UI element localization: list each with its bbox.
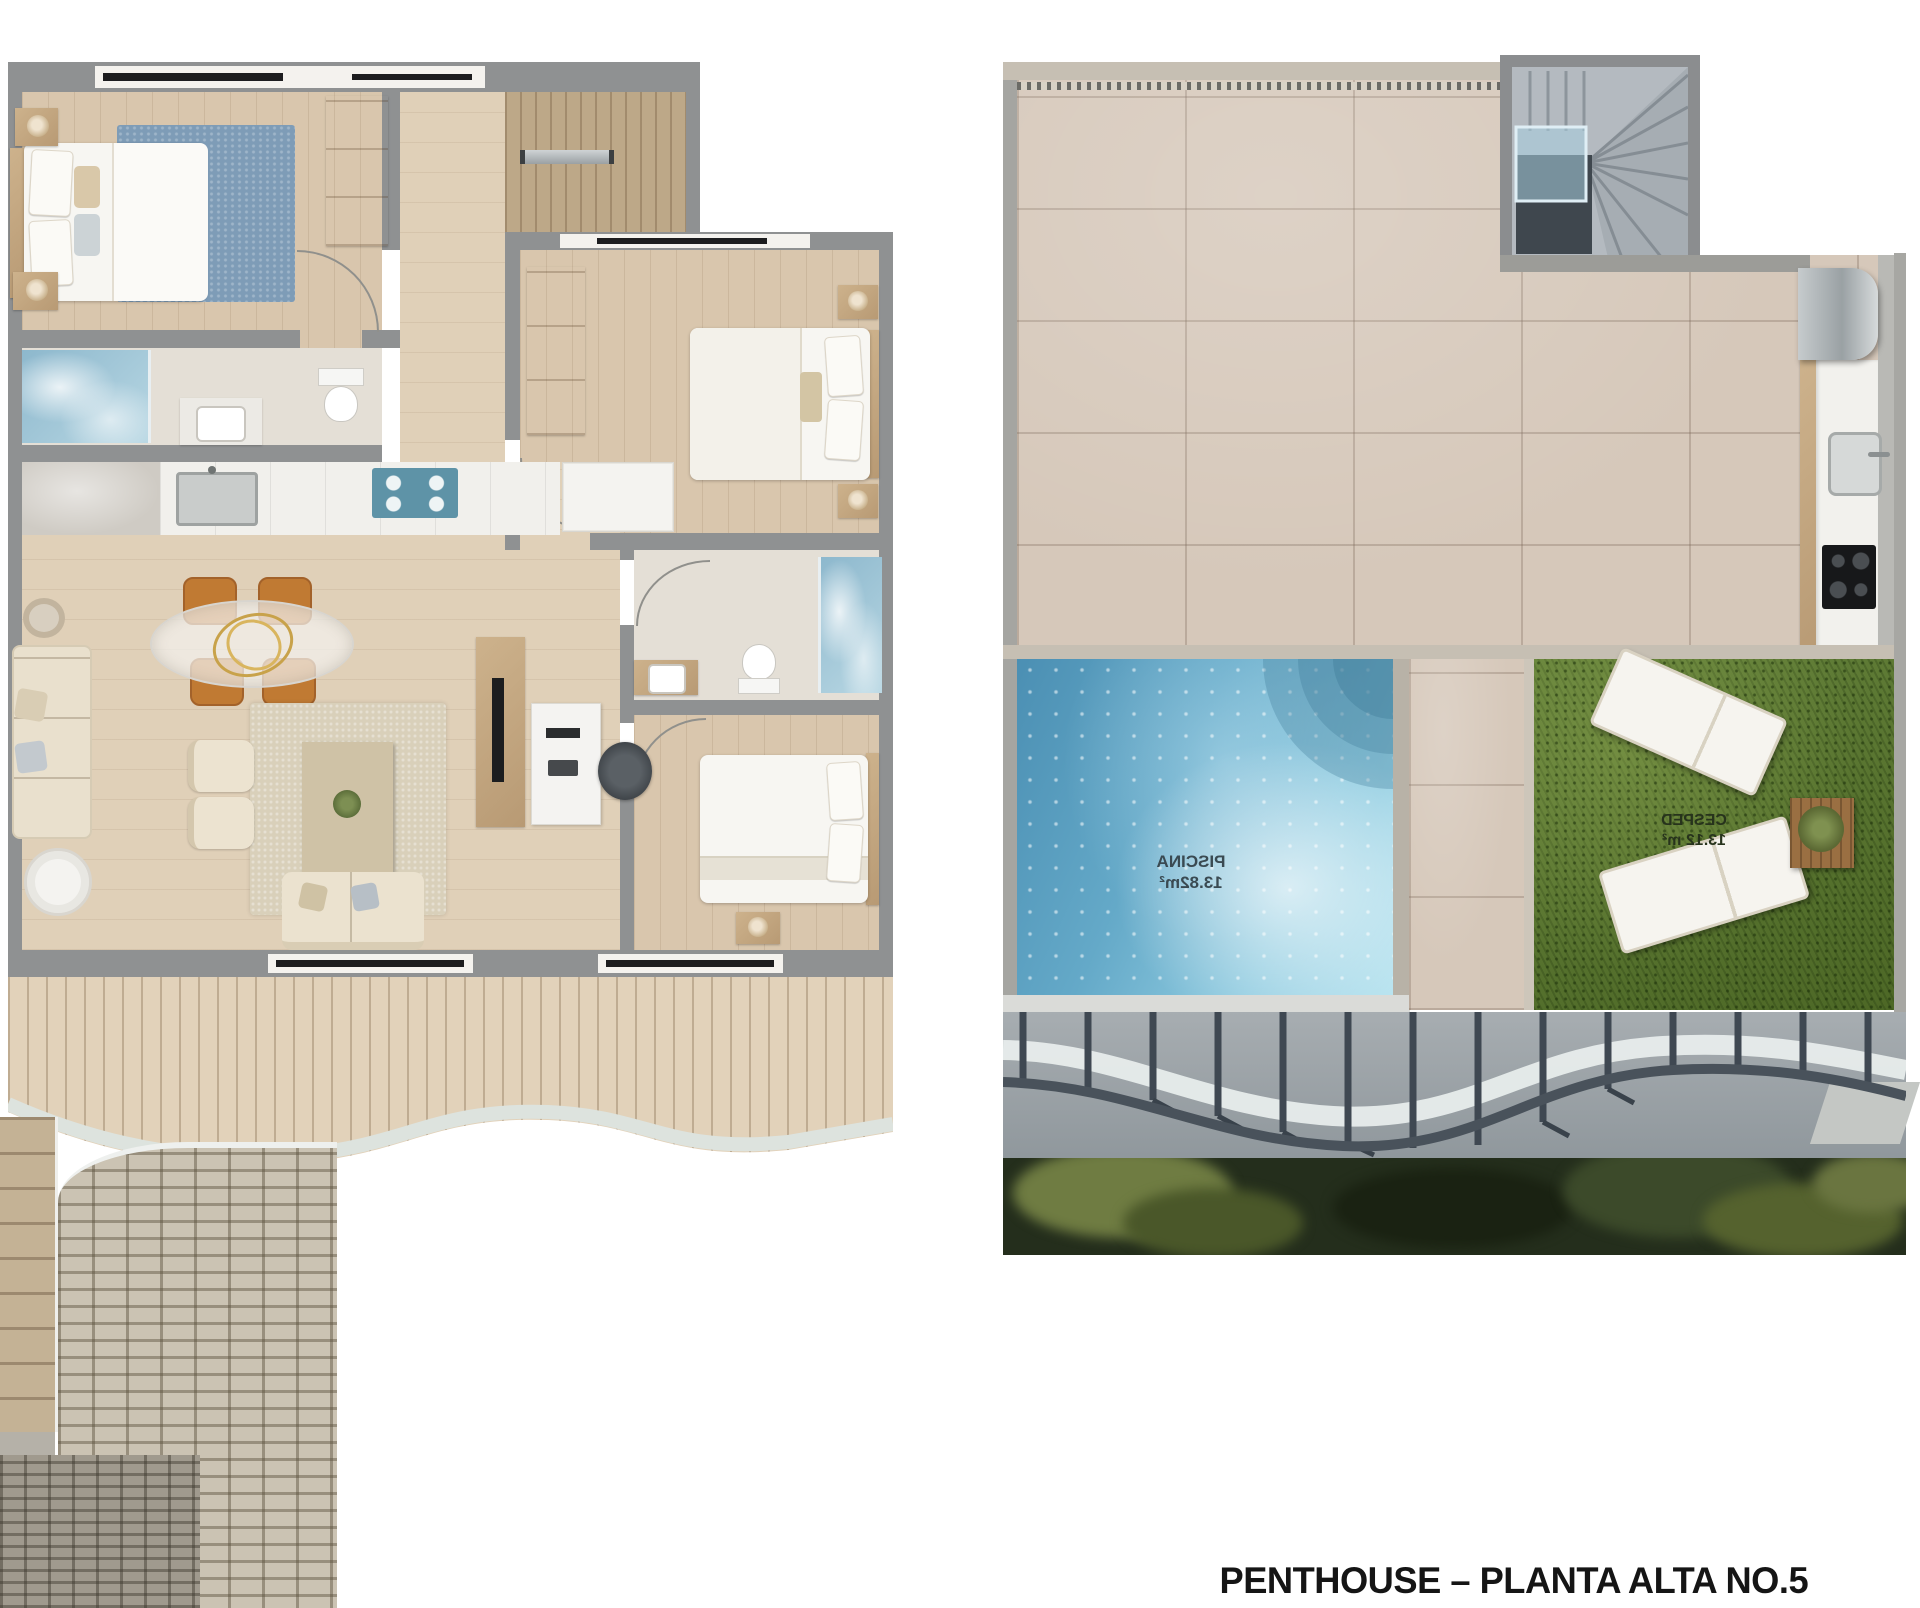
bedroom3-pillow (826, 823, 864, 883)
bathroom1-sink (196, 406, 246, 442)
terrace-top-wall (1003, 62, 1512, 80)
wall-bathroom2-left-a (620, 550, 634, 560)
terrace-drain-strip (1017, 82, 1512, 90)
wall-bedroom2-left (505, 250, 520, 440)
table-lamp (27, 115, 49, 137)
garden-steps (0, 1117, 58, 1432)
pool-bottom-wall (1003, 995, 1410, 1012)
potted-plant (1798, 806, 1844, 852)
balcony-railing (1003, 1012, 1906, 1174)
outdoor-cooktop (1822, 545, 1876, 609)
table-lamp (848, 291, 868, 311)
bathroom1-toilet-bowl (324, 386, 358, 422)
bathroom1-shower (22, 350, 151, 443)
desk-monitor (546, 728, 580, 738)
bedroom2-pillow (824, 335, 864, 397)
armchair (188, 740, 254, 792)
stairwell-winders (1512, 67, 1688, 258)
side-table-round (24, 848, 92, 916)
desk-keyboard (548, 760, 578, 776)
lawn: CESPED 13.12 m² (1534, 659, 1894, 1010)
kitchen-cooktop (372, 468, 458, 518)
bedroom2-accent-pillow (800, 372, 822, 422)
wall-bedroom2-bottom-a (505, 533, 520, 550)
bathroom2-toilet-bowl (742, 644, 776, 680)
wall-under-stairwell (1500, 255, 1810, 272)
wall-bathroom2-bottom (620, 700, 893, 715)
outdoor-counter-wood-edge (1800, 360, 1816, 660)
exterior-cutout (1690, 36, 1920, 255)
wall-bathroom1-top (8, 330, 300, 348)
wall-bedroom3-left (620, 790, 634, 950)
table-lamp (26, 279, 48, 301)
master-wardrobe (326, 96, 388, 246)
bathroom2-toilet-tank (738, 678, 780, 694)
closet-rail (520, 150, 614, 164)
wall-bedroom3-left-stub (620, 715, 634, 723)
sun-lounger (1589, 647, 1789, 797)
bathroom1-toilet-tank (318, 368, 364, 386)
pool-label: PISCINA 13.82m² (1135, 851, 1247, 894)
bedroom2-duvet-fold (690, 328, 802, 480)
plan-caption: PENTHOUSE – PLANTA ALTA NO.5 (1220, 1560, 1761, 1602)
master-duvet-fold (112, 143, 208, 301)
lawn-label-area: 13.12 m² (1662, 832, 1726, 849)
outdoor-counter (1816, 360, 1878, 660)
bedroom3-pillow (826, 761, 864, 821)
outdoor-sink (1828, 432, 1882, 496)
plan-sheet: PISCINA 13.82m² CESPED 13.12 m² (0, 0, 1920, 1608)
lawn-label-name: CESPED (1661, 812, 1727, 829)
kitchen-tall-cabinet (562, 462, 674, 532)
master-pillow (28, 149, 73, 217)
pool-label-name: PISCINA (1157, 852, 1226, 871)
walkway-tiles (1409, 659, 1524, 1010)
pool-right-wall (1393, 659, 1409, 1010)
kitchen-counter-left (22, 462, 160, 535)
pool-label-area: 13.82m² (1159, 873, 1222, 892)
table-plant (333, 790, 361, 818)
wall-bathroom2-left-b (620, 625, 634, 700)
window-bedroom2-frame (597, 238, 767, 244)
office-chair (598, 742, 652, 800)
wall-bathroom1-bottom (8, 445, 382, 462)
stairwell (1500, 55, 1700, 270)
patio-door-right-frame (606, 960, 774, 967)
sofa-pillow (14, 688, 49, 723)
terrace-left-wall (1003, 80, 1017, 1012)
tree-foliage (1333, 1168, 1573, 1248)
master-accent-pillow (74, 214, 100, 256)
bathroom2-sink (648, 664, 686, 694)
loveseat-pillow (350, 882, 380, 912)
lawn-label: CESPED 13.12 m² (1646, 811, 1742, 851)
window-closet-frame (352, 74, 472, 80)
kitchen-faucet (208, 466, 216, 474)
wall-bedroom2-bottom-b (590, 533, 893, 550)
table-lamp (848, 490, 868, 510)
rooftop-right-wall (1894, 253, 1906, 1012)
patio-paving-gray (0, 1455, 200, 1608)
sofa-pillow (14, 740, 48, 774)
wall-master-right-stub (382, 330, 400, 348)
master-accent-pillow (74, 166, 100, 208)
bedroom2-wardrobe (527, 267, 585, 435)
terrace-pool-wall (1003, 645, 1894, 659)
wall-art-round (23, 598, 65, 638)
armchair (188, 797, 254, 849)
pool: PISCINA 13.82m² (1017, 659, 1393, 995)
patio-door-left-frame (276, 960, 464, 967)
outdoor-fridge (1798, 268, 1878, 360)
tree-foliage (1123, 1188, 1303, 1255)
bedroom2-pillow (824, 399, 864, 461)
loveseat-pillow (298, 882, 329, 913)
tv-screen (492, 678, 504, 782)
wall-bathroom1-top-stub (362, 330, 382, 348)
table-lamp (748, 917, 768, 937)
outdoor-faucet (1868, 452, 1890, 457)
lawn-left-wall (1524, 659, 1534, 1010)
kitchen-sink (176, 472, 258, 526)
bathroom2-shower (818, 557, 882, 693)
wall-closet-right (686, 62, 700, 250)
window-master-frame (103, 73, 283, 81)
